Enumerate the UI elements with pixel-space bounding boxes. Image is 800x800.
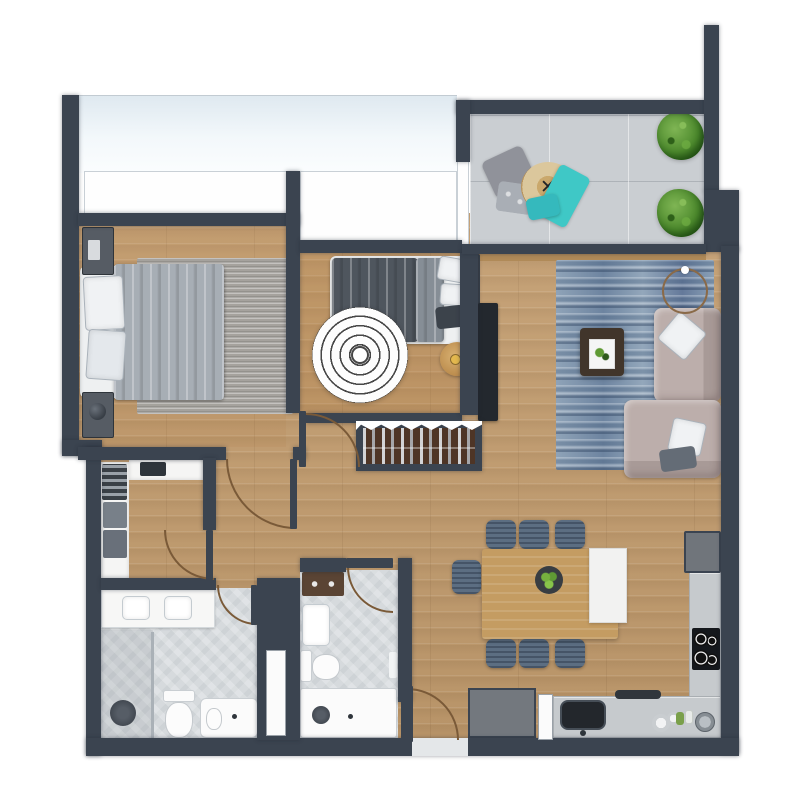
table-lamp bbox=[89, 403, 106, 420]
wall-balcony-north bbox=[456, 100, 708, 114]
vanity-sink-2 bbox=[164, 596, 192, 620]
toilet-1-tank bbox=[163, 690, 195, 702]
dining-chair-top-3 bbox=[555, 520, 585, 549]
kitchen-sink bbox=[560, 700, 606, 730]
vanity-sink-1 bbox=[122, 596, 150, 620]
shower-tray-drain-dot bbox=[348, 714, 353, 719]
dining-chair-top-2 bbox=[519, 520, 549, 549]
wall-balcony-left-stub bbox=[456, 100, 470, 162]
white-bottle bbox=[685, 710, 693, 724]
wall-balcony-south bbox=[462, 244, 706, 254]
closet-box-2 bbox=[103, 530, 127, 558]
door-leaf-entry bbox=[401, 686, 413, 742]
towel-rail bbox=[389, 652, 397, 678]
entry-side-panel bbox=[538, 694, 553, 740]
wall-closet-right bbox=[203, 458, 216, 530]
door-leaf-bath2 bbox=[346, 558, 393, 568]
entry-threshold bbox=[412, 738, 468, 756]
bathroom-divider-door bbox=[266, 650, 286, 736]
toilet-1-bowl bbox=[165, 702, 193, 738]
wall-bath2-right bbox=[398, 558, 412, 702]
door-leaf-bedroom2 bbox=[299, 411, 306, 467]
shower-glass-panel bbox=[151, 632, 154, 738]
wall-bath1-north bbox=[101, 578, 216, 590]
cooktop bbox=[692, 628, 720, 670]
wall-right-fin bbox=[704, 25, 719, 192]
wall-outer-left bbox=[62, 95, 79, 456]
round-wall-decor bbox=[662, 268, 708, 314]
coffee-table-tray bbox=[589, 339, 615, 369]
bedroom-2-window bbox=[300, 171, 457, 242]
exterior-gap-left bbox=[58, 456, 86, 800]
floor-plan-canvas: ✕ bbox=[0, 0, 800, 800]
bath2-wood-cabinet bbox=[302, 572, 344, 596]
shower-drain-1 bbox=[110, 700, 136, 726]
master-bed-duvet bbox=[114, 264, 224, 400]
decor-dot bbox=[681, 266, 689, 274]
balcony-plant-1 bbox=[657, 112, 704, 160]
closet-hanging-clothes bbox=[102, 464, 127, 500]
dining-chair-top-1 bbox=[486, 520, 516, 549]
shower-drain-2 bbox=[312, 706, 330, 724]
shoe-rack-shelves bbox=[363, 428, 475, 464]
closet-box-1 bbox=[103, 502, 127, 528]
fridge bbox=[684, 531, 721, 573]
green-bottle bbox=[676, 712, 684, 725]
wall-tv bbox=[460, 253, 478, 415]
wall-outer-right bbox=[721, 246, 739, 754]
wall-outer-left-lower bbox=[86, 447, 101, 756]
bath2-sink bbox=[302, 604, 330, 646]
dining-chair-bottom-1 bbox=[486, 639, 516, 668]
door-leaf-master bbox=[290, 459, 297, 529]
master-bed-pillow-2 bbox=[85, 329, 126, 382]
master-bed-pillow-1 bbox=[83, 275, 126, 331]
nightstand-books bbox=[88, 240, 100, 260]
tv-console bbox=[478, 303, 498, 421]
wall-bath2-north bbox=[300, 558, 346, 572]
kitchen-faucet bbox=[580, 730, 586, 736]
balcony-side-window bbox=[457, 158, 469, 248]
entry-cabinet bbox=[468, 688, 536, 738]
balcony-plant-2 bbox=[657, 189, 704, 237]
bathtub-drain bbox=[206, 708, 222, 730]
wall-right-chunk bbox=[704, 190, 739, 252]
dining-chair-bottom-3 bbox=[555, 639, 585, 668]
wall-between-bedrooms bbox=[286, 171, 300, 413]
dining-chair-left bbox=[452, 560, 481, 594]
wall-master-north bbox=[78, 213, 300, 226]
bathtub-faucet bbox=[232, 714, 237, 719]
door-leaf-closet bbox=[206, 530, 213, 580]
wall-bedroom2-north bbox=[300, 240, 462, 253]
vanity-counter bbox=[101, 588, 215, 628]
door-leaf-bath1 bbox=[251, 585, 257, 625]
window-band-north bbox=[79, 95, 457, 173]
dining-chair-bottom-2 bbox=[519, 639, 549, 668]
toilet-2-bowl bbox=[312, 654, 340, 680]
maze-rug-center bbox=[351, 346, 369, 364]
toilet-2-tank bbox=[300, 650, 312, 682]
table-centerpiece-plant bbox=[535, 566, 563, 594]
cooking-pot bbox=[695, 712, 715, 732]
closet-shelf-item bbox=[140, 462, 166, 476]
master-bedroom-window bbox=[84, 171, 296, 217]
kitchen-wall-vent bbox=[615, 690, 661, 699]
dining-white-bench bbox=[589, 548, 627, 623]
